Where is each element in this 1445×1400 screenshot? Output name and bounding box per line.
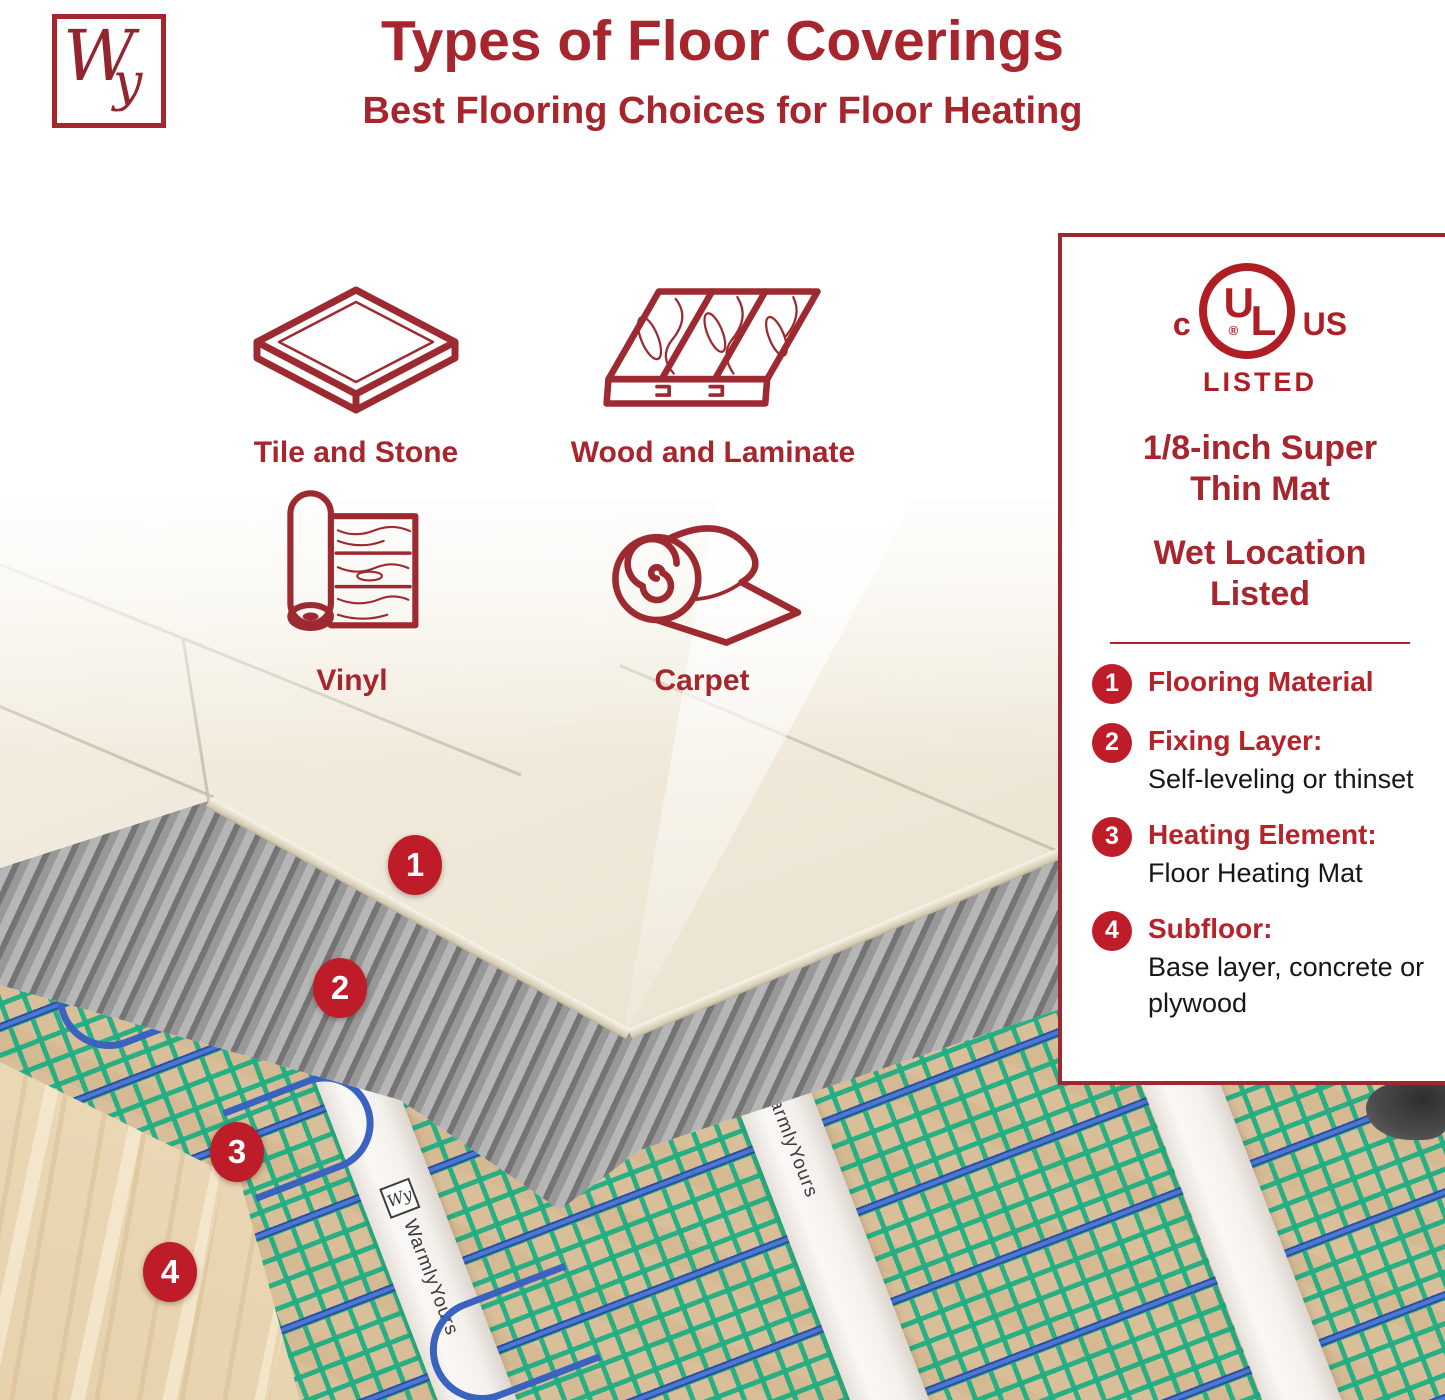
type-label: Wood and Laminate <box>571 436 855 470</box>
type-label: Carpet <box>654 664 749 698</box>
legend-description: Self-leveling or thinset <box>1148 762 1414 798</box>
logo-letter-y: y <box>113 57 142 109</box>
legend-item-flooring-material: 1 Flooring Material <box>1092 664 1428 704</box>
ul-listed-icon: U L ® <box>1199 263 1295 359</box>
layer-marker-4: 4 <box>143 1242 197 1302</box>
legend-number-badge: 1 <box>1092 664 1132 704</box>
layer-marker-3: 3 <box>210 1122 264 1182</box>
legend-item-fixing-layer: 2 Fixing Layer: Self-leveling or thinset <box>1092 723 1428 798</box>
carpet-icon <box>594 492 810 652</box>
warmlyyours-logo-icon: Wy <box>379 1177 420 1218</box>
legend-item-subfloor: 4 Subfloor: Base layer, concrete or plyw… <box>1092 911 1428 1022</box>
flooring-type-tile-stone: Tile and Stone <box>196 284 516 470</box>
legend-number-badge: 2 <box>1092 723 1132 763</box>
layer-marker-1: 1 <box>388 835 442 895</box>
tile-and-stone-icon <box>241 284 471 424</box>
layer-marker-2: 2 <box>313 958 367 1018</box>
ul-mark: c U L ® US <box>1173 263 1347 359</box>
panel-divider <box>1110 642 1410 644</box>
page-title: Types of Floor Coverings <box>0 8 1445 74</box>
warmlyyours-logo: W y <box>52 14 166 128</box>
product-title: 1/8-inch Super Thin Mat <box>1110 428 1410 511</box>
ul-letter-u: U <box>1224 279 1254 327</box>
legend-title: Heating Element: <box>1148 817 1377 853</box>
legend-description: Floor Heating Mat <box>1148 856 1377 892</box>
wood-and-laminate-icon <box>593 284 833 424</box>
legend-description: Base layer, concrete or plywood <box>1148 950 1428 1021</box>
ul-letter-l: L <box>1251 297 1277 345</box>
page-subtitle: Best Flooring Choices for Floor Heating <box>0 90 1445 133</box>
infographic-canvas: Wy WarmlyYours Wy WarmlyYours Wy WarmlyY… <box>0 0 1445 1400</box>
flooring-type-vinyl: Vinyl <box>232 486 472 698</box>
ul-us-label: US <box>1303 306 1347 343</box>
legend-title: Flooring Material <box>1148 664 1374 700</box>
flooring-type-carpet: Carpet <box>552 492 852 698</box>
vinyl-icon <box>264 486 440 652</box>
ul-c-label: c <box>1173 306 1191 343</box>
registered-mark: ® <box>1229 323 1239 338</box>
headline: Types of Floor Coverings Best Flooring C… <box>0 8 1445 133</box>
legend-item-heating-element: 3 Heating Element: Floor Heating Mat <box>1092 817 1428 892</box>
type-label: Vinyl <box>316 664 387 698</box>
ul-listed-label: LISTED <box>1203 367 1317 398</box>
legend-title: Fixing Layer: <box>1148 723 1414 759</box>
wet-location-label: Wet Location Listed <box>1125 533 1395 616</box>
type-label: Tile and Stone <box>254 436 458 470</box>
legend-number-badge: 3 <box>1092 817 1132 857</box>
flooring-type-wood-laminate: Wood and Laminate <box>548 284 878 470</box>
layer-legend: 1 Flooring Material 2 Fixing Layer: Self… <box>1092 664 1428 1041</box>
legend-number-badge: 4 <box>1092 911 1132 951</box>
legend-title: Subfloor: <box>1148 911 1428 947</box>
certification-panel: c U L ® US LISTED 1/8-inch Super Thin Ma… <box>1058 233 1445 1085</box>
